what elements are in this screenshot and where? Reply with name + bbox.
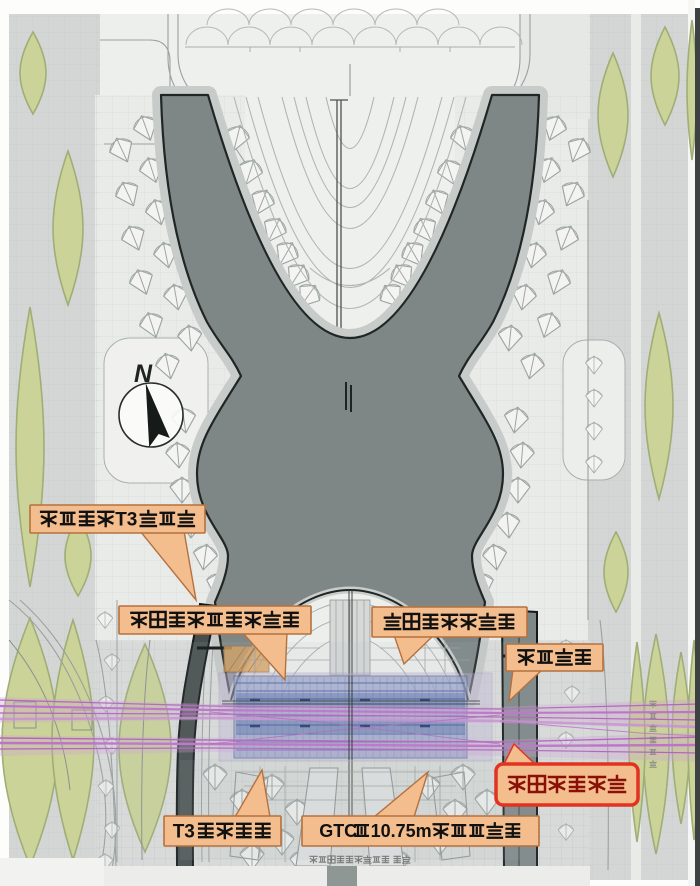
svg-text:T3: T3 [115,509,137,530]
svg-text:10.75m: 10.75m [371,821,432,841]
svg-text:T3: T3 [173,821,195,842]
svg-text:GTC: GTC [319,821,357,841]
svg-text:N: N [134,360,153,388]
